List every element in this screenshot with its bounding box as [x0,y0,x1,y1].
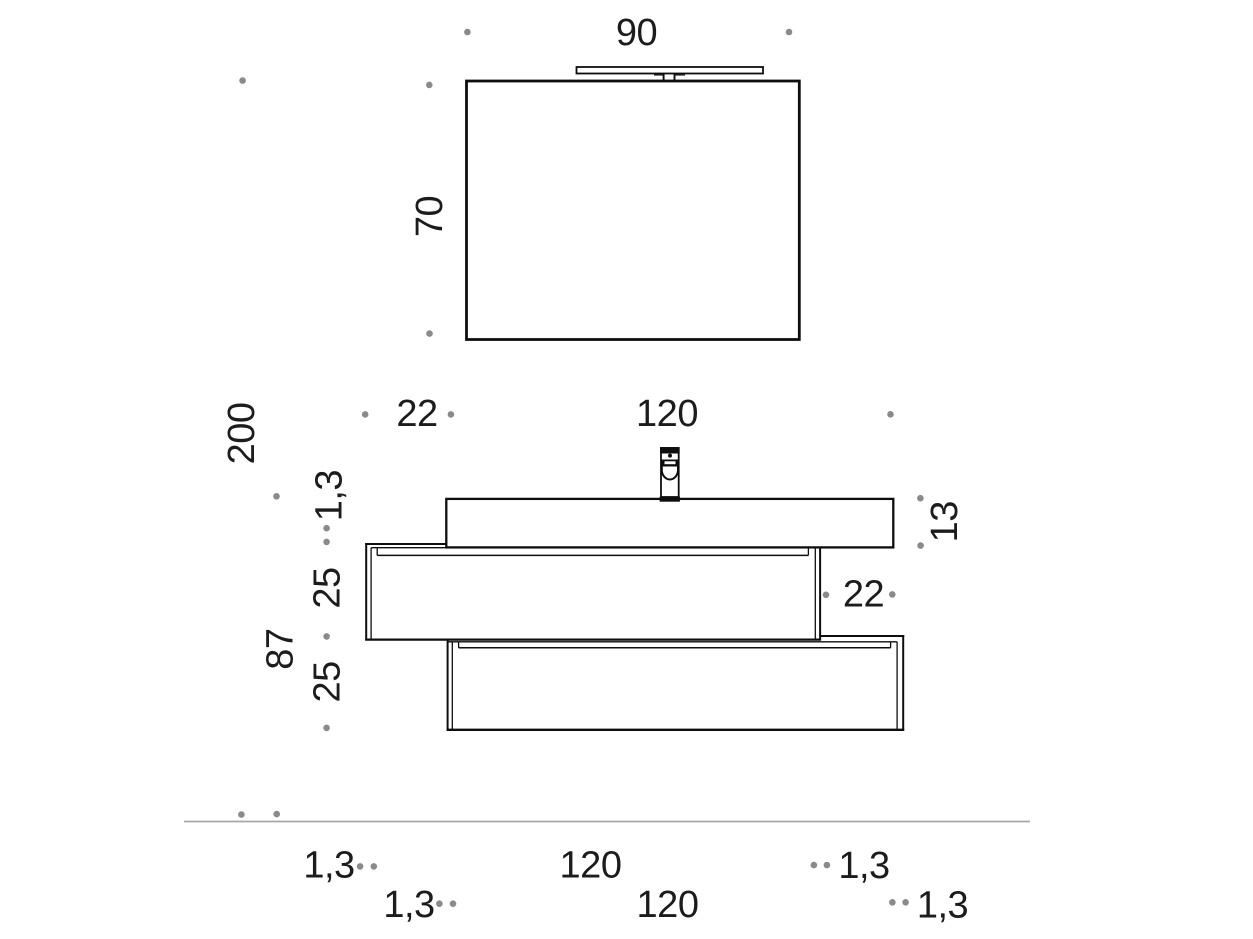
svg-text:22: 22 [843,574,884,616]
svg-text:1,3: 1,3 [309,470,351,521]
svg-text:22: 22 [396,393,437,435]
svg-text:25: 25 [306,661,348,702]
svg-text:120: 120 [560,845,622,887]
svg-text:120: 120 [637,884,699,926]
svg-text:1,3: 1,3 [838,845,889,887]
svg-text:25: 25 [306,567,348,608]
svg-text:90: 90 [616,12,657,54]
svg-text:1,3: 1,3 [917,885,968,927]
svg-text:13: 13 [924,501,966,542]
svg-text:120: 120 [636,393,698,435]
svg-text:1,3: 1,3 [303,845,354,887]
svg-text:87: 87 [259,628,301,669]
svg-text:1,3: 1,3 [383,884,434,926]
svg-text:200: 200 [221,402,263,464]
svg-text:70: 70 [409,196,451,237]
